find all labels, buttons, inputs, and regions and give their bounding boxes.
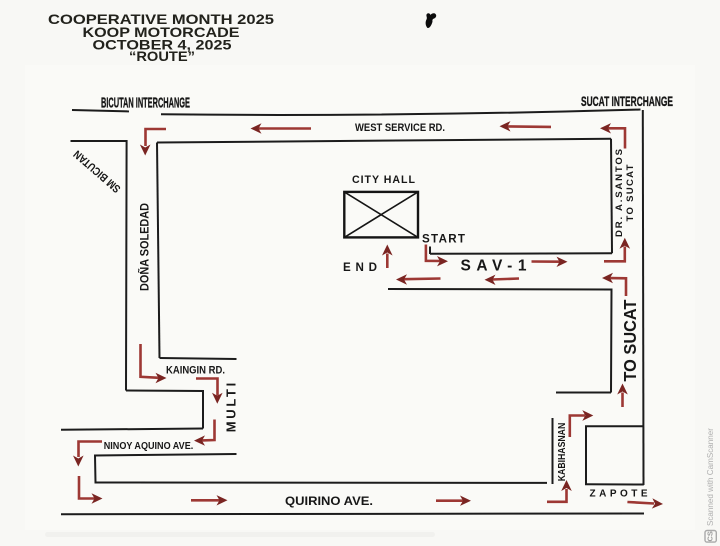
svg-text:Scanned with CamScanner: Scanned with CamScanner <box>705 428 715 526</box>
svg-text:“ROUTE”: “ROUTE” <box>129 49 195 64</box>
svg-text:DR. A.SANTOS: DR. A.SANTOS <box>614 148 625 237</box>
svg-text:KAINGIN RD.: KAINGIN RD. <box>166 364 225 376</box>
svg-text:KABIHASNAN: KABIHASNAN <box>557 423 568 482</box>
svg-text:QUIRINO AVE.: QUIRINO AVE. <box>285 494 373 508</box>
svg-text:MULTI: MULTI <box>223 383 238 433</box>
svg-text:DOÑA SOLEDAD: DOÑA SOLEDAD <box>137 203 152 291</box>
svg-text:CS: CS <box>705 531 714 541</box>
svg-text:END: END <box>343 261 377 274</box>
svg-text:CITY HALL: CITY HALL <box>352 174 416 186</box>
svg-text:START: START <box>422 232 465 245</box>
svg-text:WEST SERVICE RD.: WEST SERVICE RD. <box>355 122 445 134</box>
svg-text:SUCAT INTERCHANGE: SUCAT INTERCHANGE <box>581 93 673 109</box>
svg-text:TO SUCAT: TO SUCAT <box>625 164 636 221</box>
svg-text:SAV-1: SAV-1 <box>461 258 527 275</box>
svg-text:TO SUCAT: TO SUCAT <box>620 299 640 381</box>
svg-text:NINOY AQUINO AVE.: NINOY AQUINO AVE. <box>104 441 194 452</box>
svg-text:BICUTAN INTERCHANGE: BICUTAN INTERCHANGE <box>101 96 190 112</box>
